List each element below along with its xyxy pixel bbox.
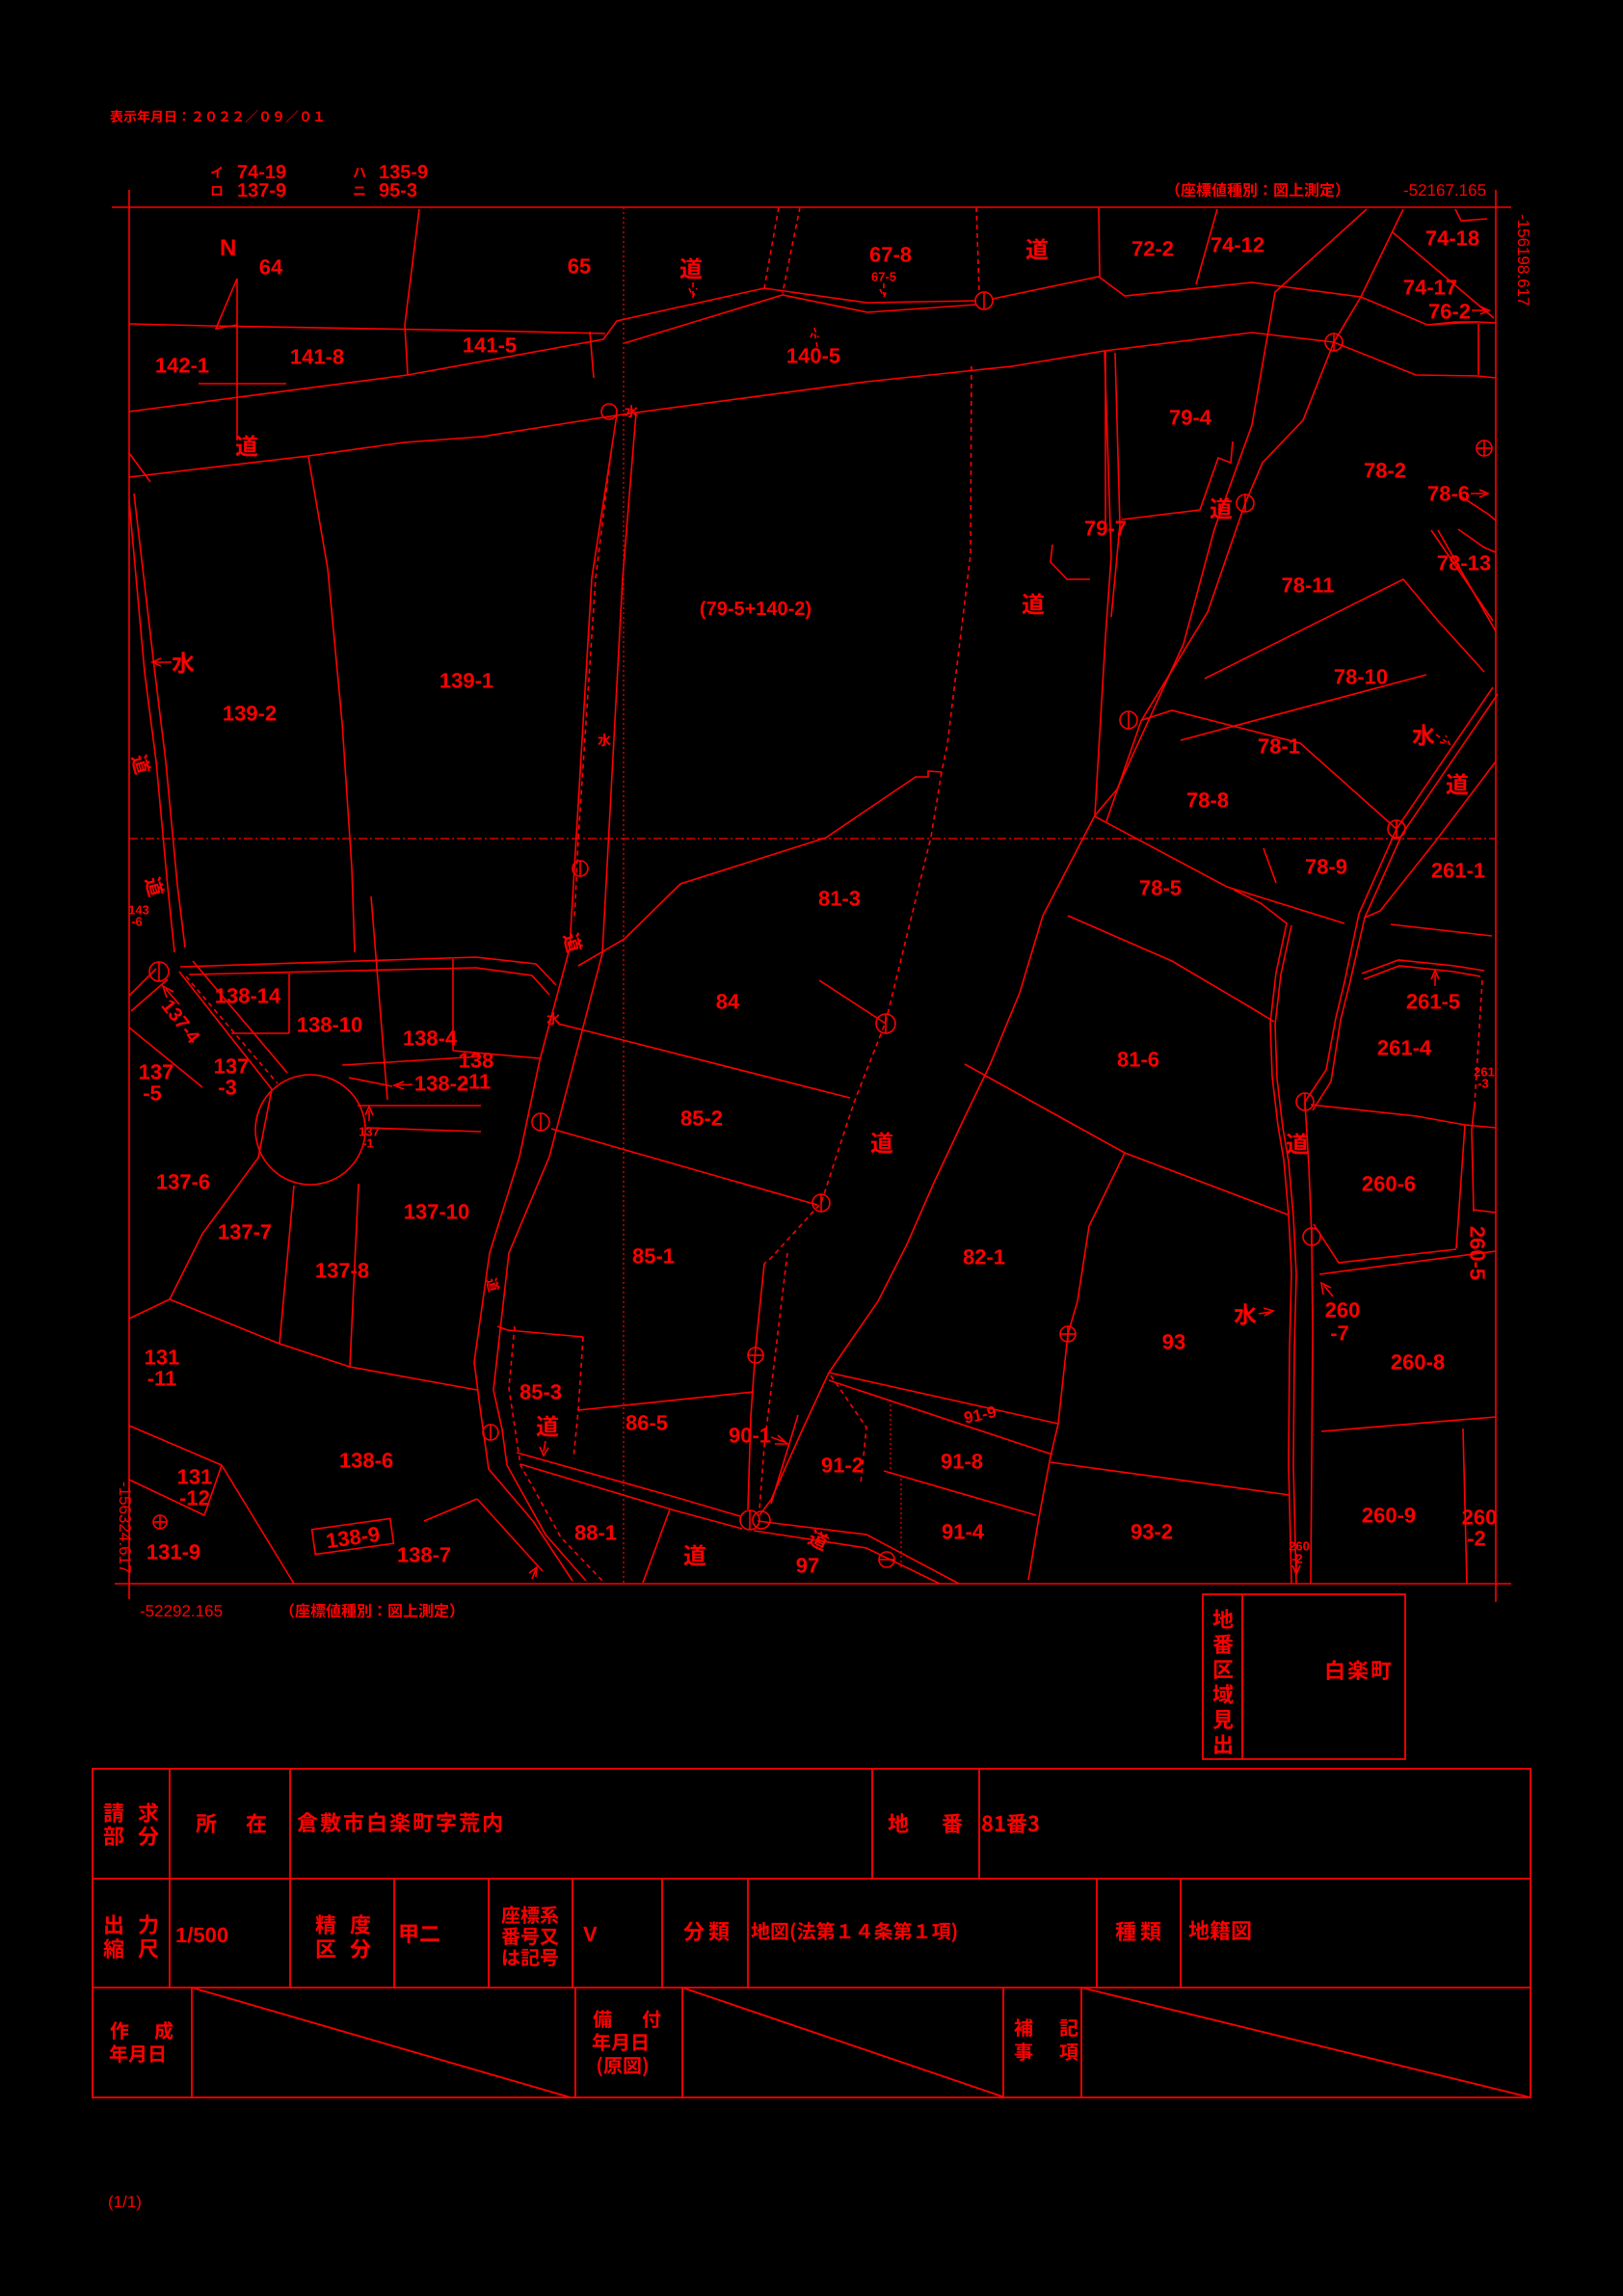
svg-text:67-5: 67-5 (871, 270, 896, 284)
svg-text:139-2: 139-2 (223, 702, 277, 726)
svg-text:78-11: 78-11 (1281, 574, 1334, 598)
svg-text:260-8: 260-8 (1391, 1350, 1445, 1375)
svg-text:-7: -7 (1330, 1322, 1349, 1346)
svg-text:93-2: 93-2 (1131, 1520, 1173, 1544)
svg-text:85-3: 85-3 (519, 1380, 562, 1404)
svg-text:261-5: 261-5 (1406, 990, 1460, 1014)
svg-text:85-2: 85-2 (680, 1107, 723, 1131)
svg-text:261-4: 261-4 (1377, 1036, 1432, 1060)
svg-text:-6: -6 (131, 915, 143, 929)
svg-text:78-8: 78-8 (1186, 788, 1229, 813)
svg-text:140-5: 140-5 (786, 344, 840, 368)
svg-text:93: 93 (1162, 1330, 1185, 1354)
svg-text:-11: -11 (147, 1367, 177, 1391)
svg-text:72-2: 72-2 (1131, 237, 1174, 261)
svg-text:138-14: 138-14 (215, 984, 281, 1008)
svg-text:95-3: 95-3 (379, 180, 417, 201)
svg-text:V: V (583, 1922, 598, 1946)
svg-text:78-9: 78-9 (1305, 855, 1347, 879)
svg-text:138-2: 138-2 (414, 1072, 468, 1096)
svg-text:261-1: 261-1 (1431, 859, 1485, 883)
svg-text:137-8: 137-8 (315, 1259, 369, 1283)
svg-text:-52292.165: -52292.165 (140, 1602, 223, 1620)
svg-text:67-8: 67-8 (869, 243, 912, 267)
svg-text:78-2: 78-2 (1364, 459, 1406, 483)
svg-text:64: 64 (259, 255, 283, 280)
svg-text:79-7: 79-7 (1084, 517, 1127, 541)
svg-text:260-6: 260-6 (1362, 1172, 1416, 1196)
svg-text:78-1: 78-1 (1258, 734, 1300, 759)
svg-text:141-8: 141-8 (290, 345, 344, 369)
svg-text:-156324.617: -156324.617 (116, 1482, 134, 1573)
svg-text:137-6: 137-6 (156, 1170, 210, 1194)
svg-text:137-7: 137-7 (218, 1220, 272, 1244)
svg-text:260: 260 (1325, 1298, 1361, 1322)
svg-text:74-18: 74-18 (1425, 227, 1479, 251)
svg-text:1/500: 1/500 (175, 1923, 228, 1947)
svg-text:81-3: 81-3 (818, 887, 861, 911)
svg-text:137-10: 137-10 (404, 1200, 470, 1224)
svg-text:-156198.617: -156198.617 (1514, 214, 1532, 306)
svg-text:137-9: 137-9 (237, 180, 286, 201)
svg-text:-3: -3 (218, 1076, 237, 1100)
svg-text:78-5: 78-5 (1139, 876, 1182, 900)
svg-text:85-1: 85-1 (632, 1244, 675, 1268)
svg-text:76-2: 76-2 (1428, 300, 1471, 324)
svg-text:65: 65 (568, 254, 591, 279)
svg-text:74-17: 74-17 (1403, 276, 1457, 300)
svg-text:78-6: 78-6 (1427, 482, 1470, 506)
svg-text:84: 84 (716, 990, 740, 1014)
svg-text:90-1: 90-1 (729, 1424, 771, 1448)
svg-text:260-5: 260-5 (1466, 1226, 1490, 1280)
svg-text:138-10: 138-10 (297, 1013, 363, 1037)
svg-text:79-4: 79-4 (1169, 406, 1212, 430)
svg-text:-1: -1 (362, 1136, 374, 1151)
svg-text:131-9: 131-9 (146, 1540, 200, 1564)
svg-text:74-12: 74-12 (1211, 233, 1264, 257)
svg-text:86-5: 86-5 (625, 1411, 668, 1435)
svg-text:-52167.165: -52167.165 (1403, 181, 1486, 200)
svg-text:(1/1): (1/1) (108, 2193, 142, 2211)
svg-text:81-6: 81-6 (1117, 1048, 1159, 1072)
svg-text:-5: -5 (143, 1081, 162, 1106)
svg-text:142-1: 142-1 (155, 354, 209, 378)
svg-text:78-13: 78-13 (1437, 551, 1491, 575)
svg-text:138-7: 138-7 (397, 1543, 451, 1567)
svg-text:-3: -3 (1477, 1077, 1489, 1091)
svg-text:78-10: 78-10 (1334, 665, 1388, 689)
svg-text:82-1: 82-1 (963, 1245, 1005, 1269)
svg-text:91-4: 91-4 (942, 1520, 985, 1544)
svg-text:138-6: 138-6 (339, 1449, 393, 1473)
svg-text:97: 97 (796, 1554, 819, 1578)
svg-text:139-1: 139-1 (439, 669, 493, 693)
svg-text:-2: -2 (1291, 1552, 1303, 1566)
svg-text:91-8: 91-8 (941, 1450, 983, 1474)
svg-text:88-1: 88-1 (574, 1521, 617, 1545)
svg-text:260-9: 260-9 (1362, 1504, 1416, 1528)
svg-text:-2: -2 (1467, 1527, 1486, 1551)
svg-text:138-4: 138-4 (403, 1027, 458, 1051)
svg-text:-12: -12 (179, 1486, 210, 1510)
svg-text:141-5: 141-5 (463, 334, 517, 358)
svg-text:N: N (220, 235, 236, 261)
svg-text:91-2: 91-2 (821, 1454, 864, 1478)
svg-text:(79-5+140-2): (79-5+140-2) (700, 599, 811, 620)
